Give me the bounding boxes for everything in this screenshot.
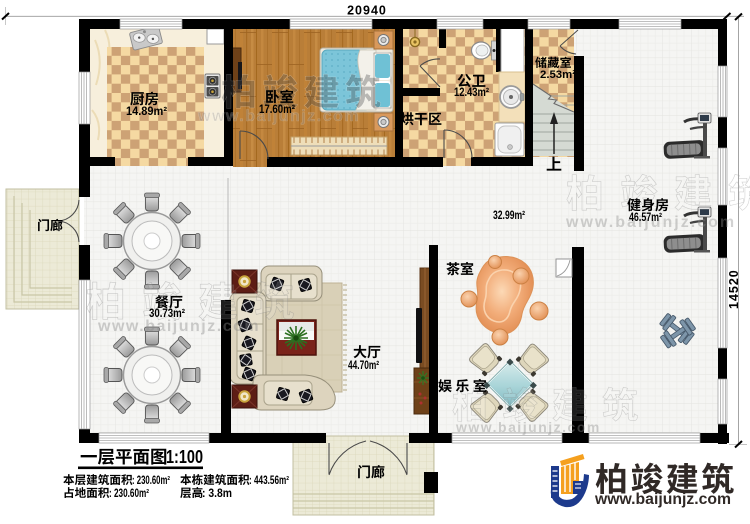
svg-text:: 230.60m²: : 230.60m²: [109, 487, 149, 500]
svg-text:46.57m²: 46.57m²: [629, 210, 662, 224]
svg-text:12.43m²: 12.43m²: [454, 85, 489, 99]
svg-text:14520: 14520: [727, 269, 741, 309]
svg-text:2.53m²: 2.53m²: [540, 69, 576, 81]
svg-text:: 3.8m: : 3.8m: [202, 487, 232, 500]
svg-text:1:100: 1:100: [166, 447, 203, 467]
svg-text:44.70m²: 44.70m²: [348, 358, 379, 372]
svg-text:www.baijunjz.com: www.baijunjz.com: [97, 318, 260, 335]
svg-text:www.baijunjz.com: www.baijunjz.com: [594, 491, 731, 508]
svg-text:14.89m²: 14.89m²: [126, 104, 167, 118]
svg-text:: 230.60m²: : 230.60m²: [132, 474, 170, 487]
svg-text:32.99m²: 32.99m²: [493, 208, 525, 222]
svg-text:30.73m²: 30.73m²: [149, 306, 185, 320]
svg-text:: 443.56m²: : 443.56m²: [249, 474, 289, 487]
svg-text:www.baijunjz.com: www.baijunjz.com: [455, 419, 601, 435]
svg-text:20940: 20940: [347, 4, 387, 18]
svg-text:17.60m²: 17.60m²: [259, 102, 295, 116]
